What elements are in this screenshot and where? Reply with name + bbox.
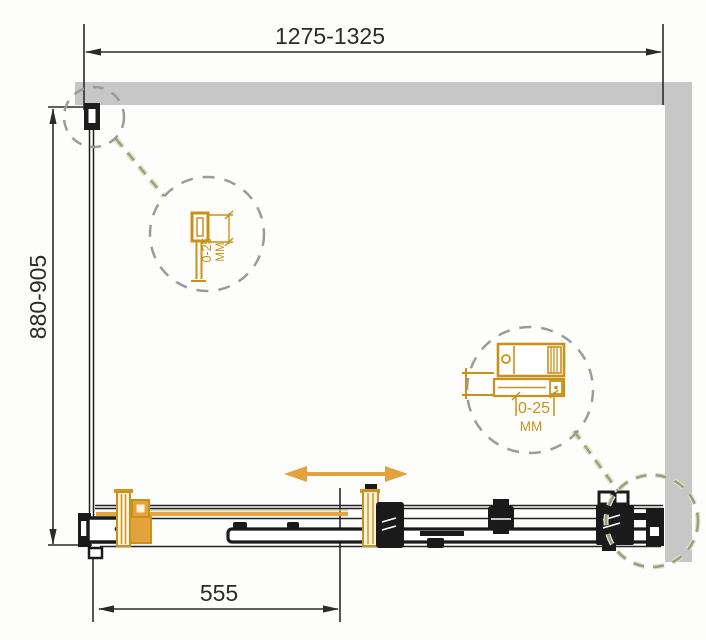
bottom-track-assembly bbox=[78, 484, 664, 558]
door-clip bbox=[287, 522, 299, 529]
clip-tab bbox=[493, 499, 509, 507]
wall-profile-adjustment-unit: MM bbox=[215, 242, 227, 261]
arrowhead-left-icon bbox=[85, 48, 101, 55]
enclosure-drawing: 1275-1325 880-905 555 bbox=[0, 0, 706, 640]
left-roller-carriage bbox=[114, 489, 151, 546]
carriage-post bbox=[117, 492, 130, 546]
height-dimension-label: 880-905 bbox=[25, 255, 51, 339]
adjuster-dot bbox=[554, 386, 558, 390]
wall-profile-adjustment-value: 0-25 bbox=[200, 237, 214, 262]
diagram-canvas: 1275-1325 880-905 555 bbox=[0, 0, 706, 640]
left-glass-panel bbox=[84, 103, 100, 518]
carriage-nut bbox=[615, 492, 628, 504]
guide-foot bbox=[427, 538, 444, 548]
walls bbox=[75, 82, 692, 562]
arrowhead-right-icon bbox=[323, 605, 339, 612]
roller-body bbox=[376, 502, 404, 548]
leader-lines bbox=[116, 139, 618, 491]
arrowhead-up-icon bbox=[49, 108, 56, 124]
left-foot bbox=[89, 548, 102, 558]
carriage-post bbox=[363, 491, 378, 546]
width-dimension-label: 1275-1325 bbox=[275, 23, 385, 49]
door-clip bbox=[233, 522, 247, 530]
right-wall bbox=[665, 82, 692, 562]
top-wall bbox=[75, 82, 692, 105]
profile-cap bbox=[192, 213, 208, 241]
leader-line bbox=[116, 139, 164, 196]
arrow-head-left bbox=[284, 466, 307, 482]
arrowhead-left-icon bbox=[98, 605, 114, 612]
adjuster-slot bbox=[137, 505, 145, 513]
arrow-head-right bbox=[385, 466, 408, 482]
arrowhead-right-icon bbox=[646, 48, 662, 55]
left-height-dimension bbox=[48, 107, 95, 545]
roller-block bbox=[130, 517, 151, 543]
arrowhead-down-icon bbox=[49, 529, 56, 545]
door-opening-label: 555 bbox=[200, 580, 238, 606]
left-wall-bracket-slot bbox=[81, 521, 87, 536]
bracket-slot bbox=[650, 527, 659, 536]
middle-guide-clip bbox=[488, 499, 514, 534]
roller-foot bbox=[602, 545, 616, 551]
clip-body bbox=[488, 506, 514, 530]
right-roller-carriage bbox=[596, 492, 634, 551]
wall-profile-slot bbox=[89, 109, 96, 123]
guide-bar bbox=[420, 531, 464, 536]
roller-adjustment-unit: MM bbox=[520, 419, 543, 434]
slide-direction-arrow-icon bbox=[284, 466, 408, 482]
leader-line bbox=[574, 431, 618, 491]
roller-adjustment-value: 0-25 bbox=[518, 400, 550, 417]
clip-foot bbox=[493, 529, 509, 534]
